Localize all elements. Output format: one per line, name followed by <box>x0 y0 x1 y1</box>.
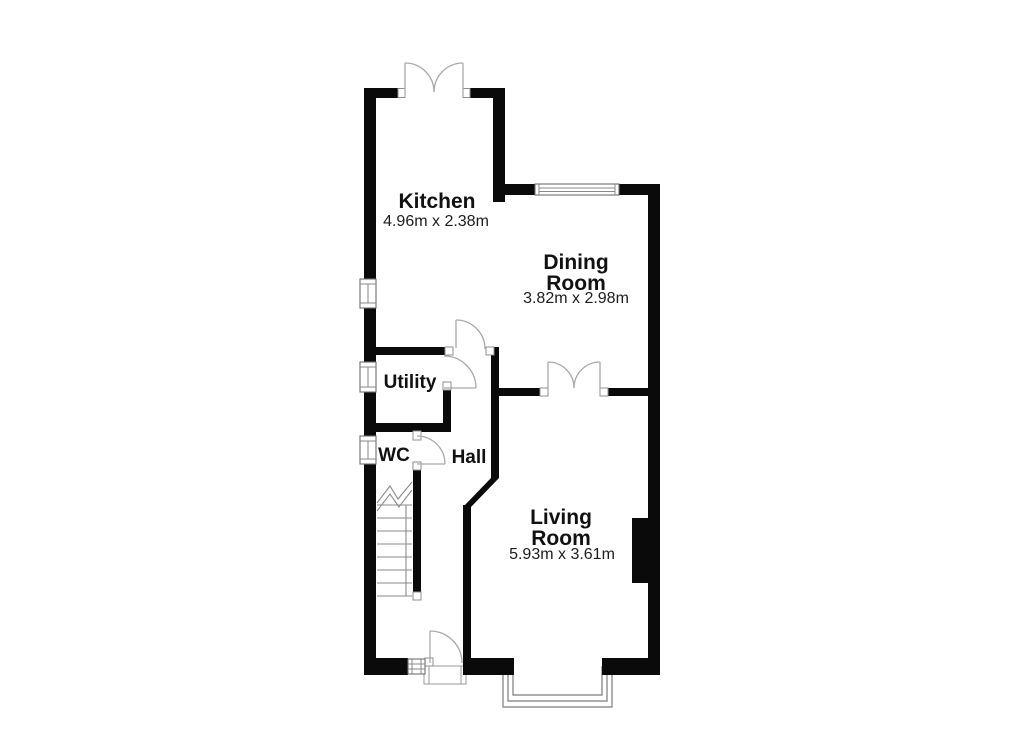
bay-window-inner <box>513 666 602 695</box>
floor-plan: Kitchen 4.96m x 2.38m Dining Room 3.82m … <box>0 0 1024 745</box>
room-dims-living: 5.93m x 3.61m <box>509 546 615 563</box>
jamb <box>540 388 548 396</box>
room-label-living-line1: Living <box>530 506 592 529</box>
jamb <box>486 347 494 355</box>
jamb <box>413 462 421 470</box>
stairs <box>377 482 412 596</box>
door-swing-arc <box>405 63 434 92</box>
exterior-wall-right <box>648 184 660 675</box>
double-doors-dining-living <box>548 362 600 388</box>
room-dims-dining: 3.82m x 2.98m <box>523 290 629 307</box>
window-utility <box>360 362 376 392</box>
french-doors-kitchen <box>405 63 463 92</box>
room-label-kitchen: Kitchen <box>398 190 475 213</box>
door-swing-arc <box>434 63 463 92</box>
window-front-sidelight <box>408 659 425 674</box>
window-frame <box>408 659 425 674</box>
room-label-dining-line1: Dining <box>543 251 608 274</box>
chimney-breast <box>632 518 649 583</box>
window-wc <box>360 436 376 464</box>
dining-top-wall-left <box>505 184 535 195</box>
hall-east-wall-lower <box>463 505 471 658</box>
room-dims-kitchen: 4.96m x 2.38m <box>383 213 489 230</box>
window-dining <box>535 184 619 195</box>
room-label-utility: Utility <box>384 372 437 393</box>
kitchen-east-wall <box>493 88 505 202</box>
dining-living-divider-right <box>608 388 648 396</box>
bottom-wall-middle <box>463 658 514 675</box>
door-swing-arc <box>574 362 600 388</box>
jamb <box>413 592 421 600</box>
hall-east-wall-upper <box>491 347 499 478</box>
hall-east-wall-diagonal <box>463 478 499 507</box>
door-swing-arc <box>456 320 485 349</box>
jamb <box>443 382 451 390</box>
front-door-threshold <box>424 666 466 684</box>
jamb <box>600 388 608 396</box>
room-label-wc: WC <box>378 445 410 466</box>
door-swing-arc <box>430 631 462 663</box>
bottom-wall-right <box>602 658 660 675</box>
kitchen-hall-door <box>456 320 485 349</box>
jamb <box>463 89 470 98</box>
bottom-wall-left <box>364 658 408 675</box>
threshold-rect <box>424 666 466 684</box>
jamb <box>445 347 453 355</box>
bay-window-middle <box>508 666 607 701</box>
jamb <box>425 658 433 666</box>
room-label-hall: Hall <box>452 447 487 468</box>
dining-living-divider-left <box>499 388 540 396</box>
jamb <box>398 89 405 98</box>
window-kitchen-left <box>360 279 376 308</box>
bay-window <box>503 666 612 707</box>
floor-plan-page: Kitchen 4.96m x 2.38m Dining Room 3.82m … <box>0 0 1024 745</box>
kitchen-south-wall <box>376 347 445 355</box>
door-swing-arc <box>548 362 574 388</box>
wc-east-wall <box>413 470 421 600</box>
front-door <box>430 631 462 663</box>
window-frame <box>535 184 619 195</box>
